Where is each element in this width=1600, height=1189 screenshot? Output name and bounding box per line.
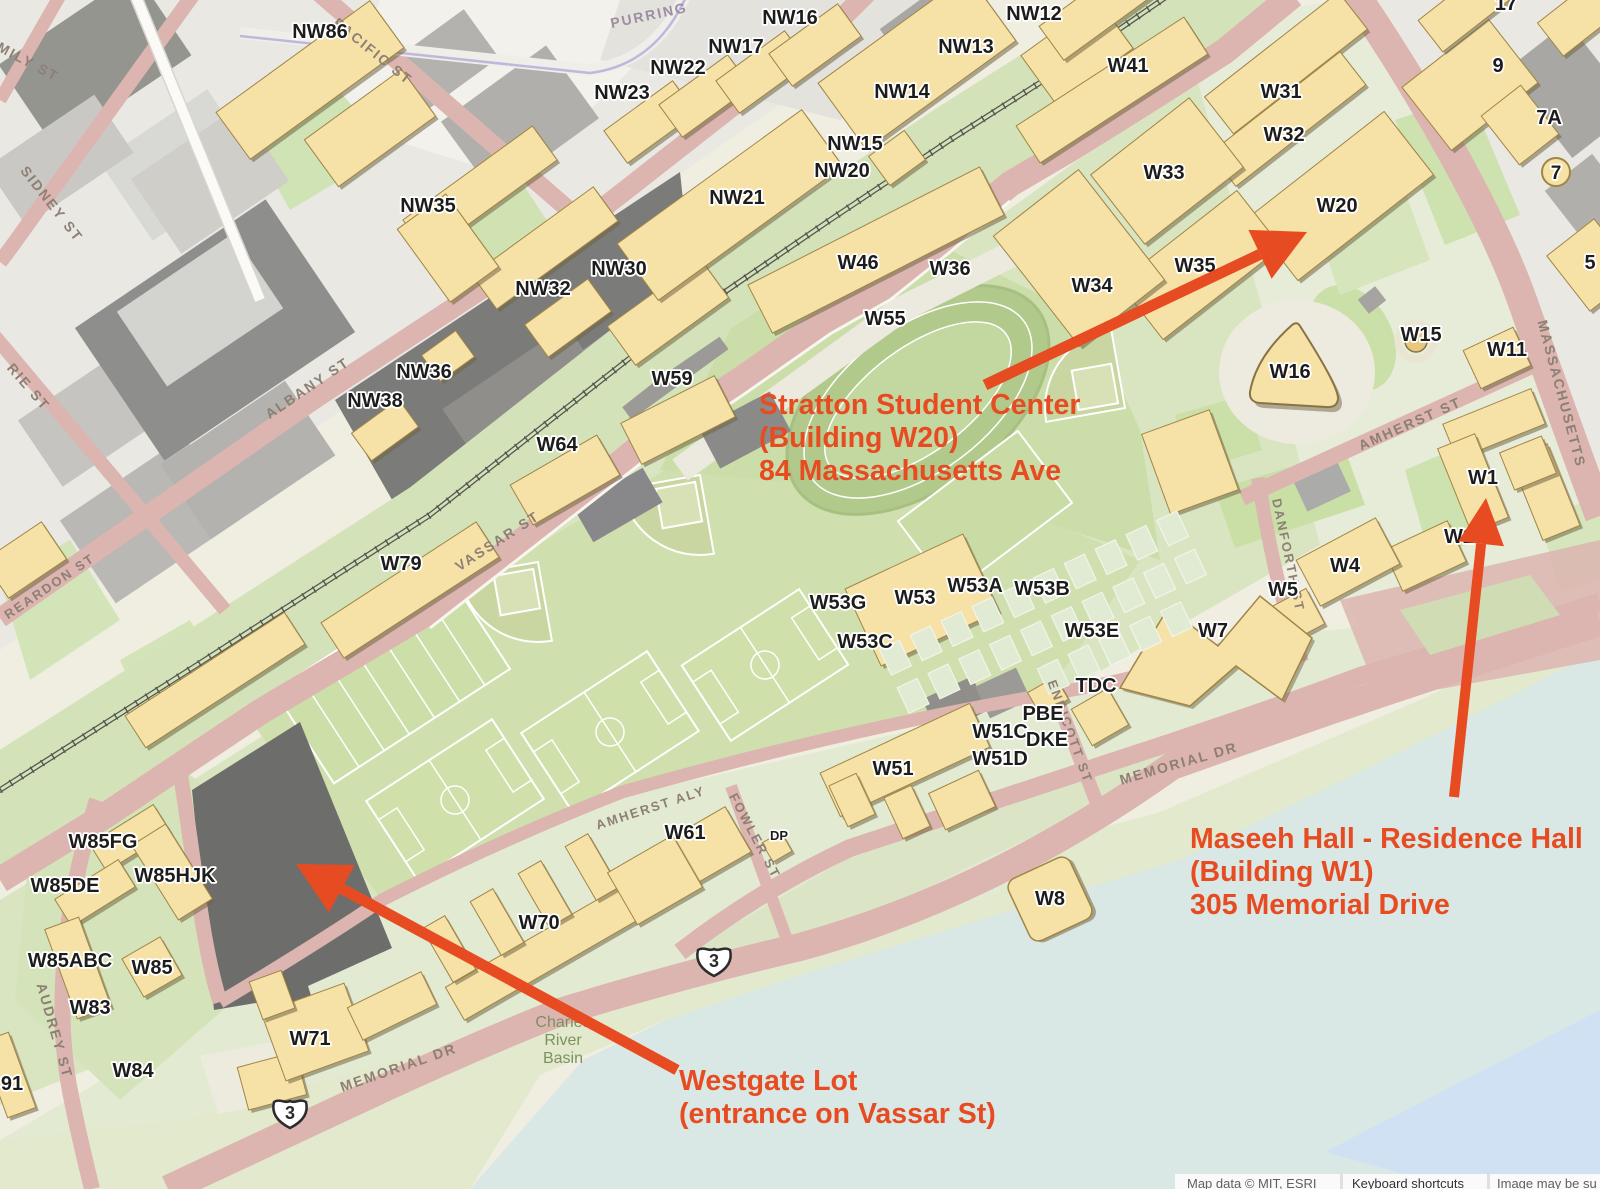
svg-text:W85: W85 — [131, 957, 172, 979]
svg-text:W53A: W53A — [947, 575, 1003, 597]
svg-text:9: 9 — [1492, 55, 1503, 77]
svg-text:Westgate Lot: Westgate Lot — [679, 1065, 858, 1097]
svg-text:NW22: NW22 — [650, 57, 706, 79]
svg-text:NW14: NW14 — [874, 81, 930, 103]
svg-text:Image may be su: Image may be su — [1497, 1176, 1597, 1189]
svg-text:DP: DP — [770, 828, 788, 843]
svg-text:W46: W46 — [837, 252, 878, 274]
svg-text:W85ABC: W85ABC — [28, 950, 112, 972]
svg-text:W53E: W53E — [1065, 620, 1119, 642]
svg-text:NW35: NW35 — [400, 195, 456, 217]
svg-text:3: 3 — [285, 1103, 295, 1123]
svg-text:W51C: W51C — [972, 721, 1028, 743]
svg-text:W7: W7 — [1198, 620, 1228, 642]
svg-text:305 Memorial Drive: 305 Memorial Drive — [1190, 889, 1450, 921]
svg-text:W53G: W53G — [810, 592, 867, 614]
svg-text:NW30: NW30 — [591, 258, 647, 280]
svg-text:River: River — [544, 1032, 582, 1049]
svg-text:NW86: NW86 — [292, 21, 348, 43]
svg-text:NW13: NW13 — [938, 36, 994, 58]
svg-text:5: 5 — [1584, 252, 1595, 274]
svg-text:91: 91 — [1, 1073, 23, 1095]
svg-text:NW32: NW32 — [515, 278, 571, 300]
svg-text:(Building W20): (Building W20) — [759, 422, 958, 454]
svg-text:W64: W64 — [536, 434, 578, 456]
svg-text:PBE: PBE — [1022, 703, 1063, 725]
svg-text:NW20: NW20 — [814, 160, 870, 182]
svg-text:W85DE: W85DE — [31, 875, 100, 897]
svg-text:Basin: Basin — [543, 1050, 583, 1067]
svg-text:W85FG: W85FG — [69, 831, 138, 853]
svg-text:W20: W20 — [1316, 195, 1357, 217]
svg-text:W8: W8 — [1035, 888, 1065, 910]
svg-text:W41: W41 — [1107, 55, 1148, 77]
svg-text:W53B: W53B — [1014, 578, 1070, 600]
svg-text:W11: W11 — [1487, 339, 1527, 361]
svg-text:W51: W51 — [872, 758, 913, 780]
svg-text:DKE: DKE — [1026, 729, 1068, 751]
svg-text:W55: W55 — [864, 308, 905, 330]
svg-text:W36: W36 — [929, 258, 970, 280]
svg-text:W15: W15 — [1400, 324, 1441, 346]
svg-text:W16: W16 — [1269, 361, 1310, 383]
svg-text:W71: W71 — [289, 1028, 330, 1050]
svg-text:NW21: NW21 — [709, 187, 765, 209]
svg-text:Map data © MIT, ESRI: Map data © MIT, ESRI — [1187, 1176, 1317, 1189]
svg-text:Maseeh Hall - Residence Hall: Maseeh Hall - Residence Hall — [1190, 823, 1583, 855]
svg-text:W31: W31 — [1260, 81, 1301, 103]
svg-text:TDC: TDC — [1075, 675, 1116, 697]
svg-text:W83: W83 — [69, 997, 110, 1019]
svg-text:NW15: NW15 — [827, 133, 883, 155]
svg-text:W32: W32 — [1263, 124, 1304, 146]
svg-text:NW17: NW17 — [708, 36, 764, 58]
svg-text:Keyboard shortcuts: Keyboard shortcuts — [1352, 1176, 1465, 1189]
svg-text:NW36: NW36 — [396, 361, 452, 383]
svg-text:3: 3 — [709, 951, 719, 971]
svg-text:Stratton Student Center: Stratton Student Center — [759, 389, 1080, 421]
svg-text:W53: W53 — [894, 587, 935, 609]
svg-text:W59: W59 — [651, 368, 692, 390]
svg-text:W85HJK: W85HJK — [134, 865, 216, 887]
svg-text:NW16: NW16 — [762, 7, 818, 29]
svg-text:W84: W84 — [112, 1060, 154, 1082]
svg-text:NW23: NW23 — [594, 82, 650, 104]
svg-text:W5: W5 — [1268, 579, 1298, 601]
svg-text:W34: W34 — [1071, 275, 1113, 297]
svg-text:7A: 7A — [1536, 107, 1562, 129]
svg-text:84 Massachusetts Ave: 84 Massachusetts Ave — [759, 455, 1061, 487]
svg-text:(Building W1): (Building W1) — [1190, 856, 1374, 888]
svg-text:NW12: NW12 — [1006, 3, 1062, 25]
svg-text:W33: W33 — [1143, 162, 1184, 184]
svg-text:W51D: W51D — [972, 748, 1028, 770]
svg-text:W79: W79 — [380, 553, 421, 575]
svg-text:W4: W4 — [1330, 555, 1361, 577]
svg-text:(entrance on Vassar St): (entrance on Vassar St) — [679, 1098, 996, 1130]
svg-text:W1: W1 — [1468, 467, 1498, 489]
svg-text:W70: W70 — [518, 912, 559, 934]
svg-text:NW38: NW38 — [347, 390, 403, 412]
svg-text:17: 17 — [1495, 0, 1517, 15]
svg-text:W53C: W53C — [837, 631, 893, 653]
svg-text:7: 7 — [1551, 163, 1562, 184]
svg-text:W61: W61 — [664, 822, 705, 844]
